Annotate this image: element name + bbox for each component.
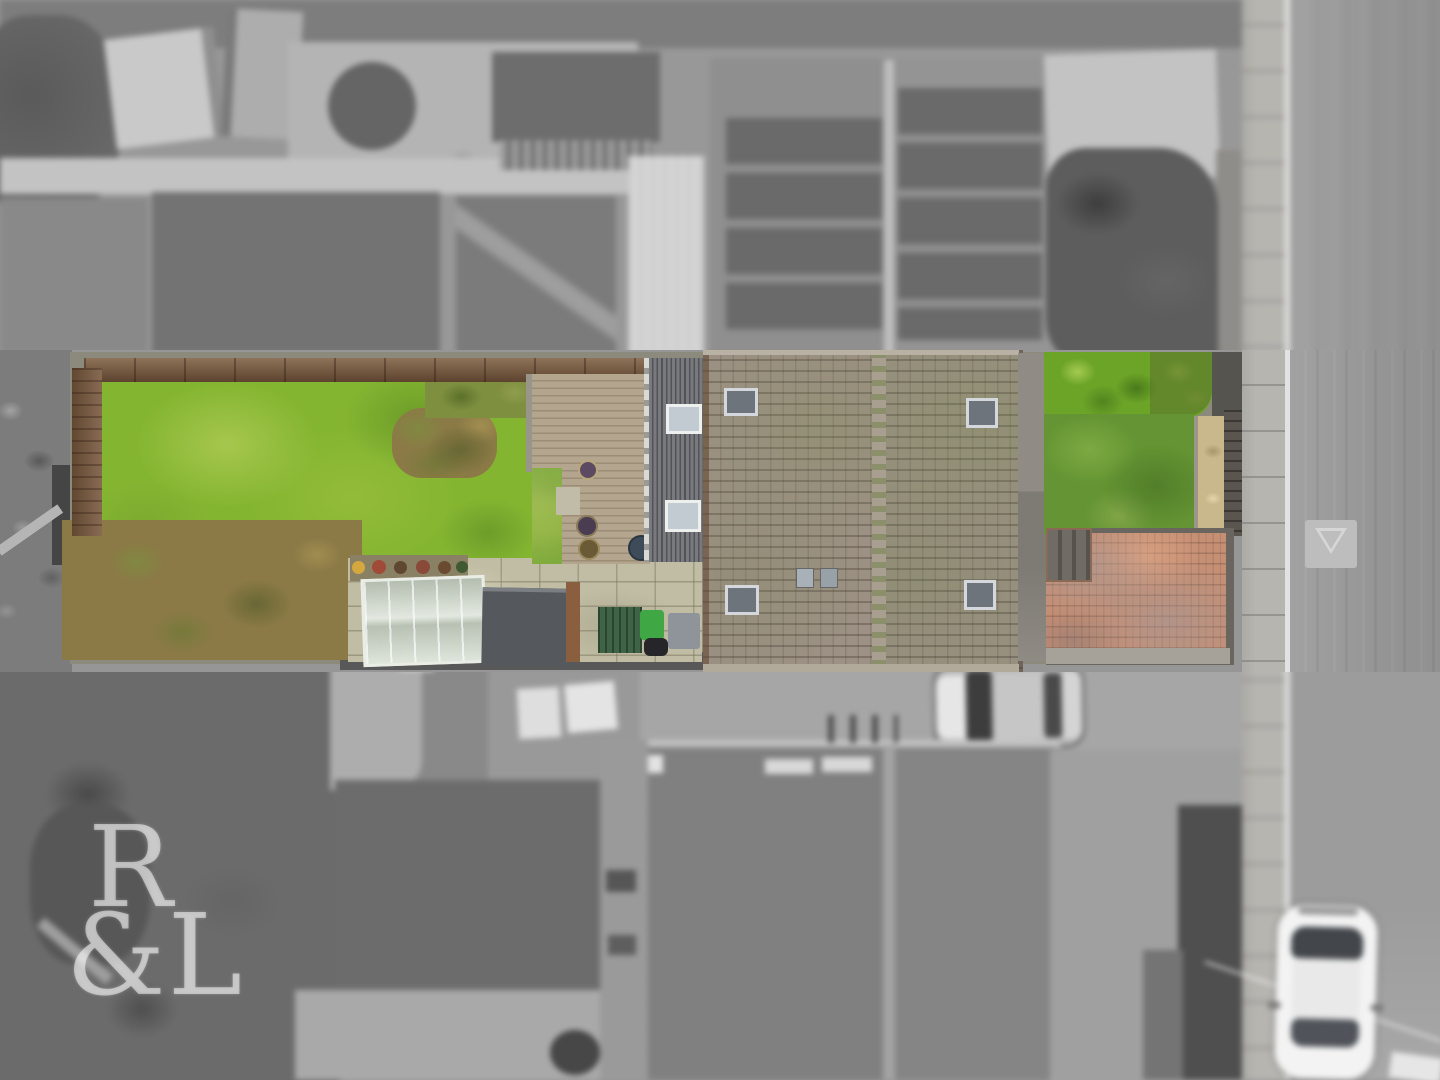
grey-storage-box [668,613,700,649]
main-roof-ridge [872,352,886,672]
grey-car-roof [993,671,1046,740]
aerial-photo: R &L [0,0,1440,1080]
roof-vent-2 [820,568,838,588]
bottom-house-right-slope [895,747,1057,1080]
roof-skylight-c [725,585,759,615]
deck-pot-3 [578,538,600,560]
white-car-windscreen [1291,926,1364,960]
roof-eaves-bottom [703,664,1019,672]
greenhouse [361,575,488,667]
patio-notch [330,655,422,790]
pot-red-1 [372,560,386,574]
deck-pot-1 [578,460,598,480]
shed-roof [104,27,227,150]
pot-brown-1 [394,561,407,574]
top-house-ridge [884,60,894,356]
white-car-grille [1298,906,1358,916]
dark-blob [550,1030,600,1075]
lawn-notch [532,468,562,564]
pale-long-building [628,156,704,366]
watermark-line-2: &L [66,900,244,1012]
conservatory-window-2 [564,681,618,733]
white-car-rear-window [1291,1018,1360,1048]
back-fence-left [72,368,102,536]
side-wall-strip [600,740,648,1080]
give-way-patch [1305,520,1357,568]
roof-skylight-b [966,398,998,428]
shrub-patch-right [392,408,497,478]
pavement-top [1242,0,1288,366]
dark-garden-mid [335,780,645,1015]
hedge-shadow-strip [1212,352,1246,418]
pavement-mid [1242,350,1288,672]
give-way-triangle-inner [1320,531,1342,549]
aerial-antenna [828,715,898,743]
garden-plot-c [456,196,616,354]
step-stone [556,487,580,515]
roof-skylight-d [964,580,996,610]
bin-store [598,607,642,653]
pot-green [456,561,468,573]
ridge-vent-2 [822,757,872,772]
grey-car-rear-window [1043,673,1062,737]
roof-vent-1 [796,568,814,588]
surroundings-top [0,0,1440,366]
conservatory-window-1 [517,687,562,739]
white-car-mirror-right [1371,1004,1384,1011]
roof-skylight-a [724,388,758,416]
dark-shed [481,587,572,667]
dark-shed-roof [492,52,660,142]
bottom-house-left-slope [645,747,885,1080]
gravel-bed [1194,416,1228,534]
pot-brown-2 [438,561,451,574]
grey-car [935,665,1082,748]
white-car [1274,904,1379,1080]
garage-shadow [1143,950,1183,1080]
dark-hedge-mass [1046,148,1218,366]
road-mid [1290,350,1440,672]
drive-apron [1046,648,1230,664]
extension-skylight-2 [665,500,701,532]
solar-panels-right [898,88,1042,340]
black-bags [644,638,668,656]
ridge-vent-1 [765,759,813,774]
deck-pot-2 [576,515,598,537]
front-lawn [1044,414,1194,534]
side-passage [1018,353,1046,661]
roof-eaves-top [703,350,1019,355]
solar-panels-left [726,118,882,336]
dry-shrub-border [62,520,362,660]
property-strip [0,350,1440,672]
pot-red-2 [416,560,430,574]
garden-plot-a [0,198,148,353]
garden-plot-b [152,192,440,354]
road-top [1290,0,1440,366]
dark-garage-strip [1178,805,1244,1080]
white-car-roof [1291,958,1361,1020]
grey-car-boot [1061,671,1082,739]
main-roof-right-slope [886,350,1023,672]
bottom-house-ridge [883,745,895,1080]
green-bin-lid [640,610,664,640]
white-car-mirror-left [1268,1001,1281,1008]
dark-window-2 [608,935,636,955]
shed-wood-edge [566,582,580,662]
extension-skylight-1 [666,404,702,434]
round-bush [328,62,416,150]
pot-yellow [352,561,365,574]
grey-car-windscreen [965,670,992,742]
dark-window-1 [606,870,636,892]
driveway-steps [1046,528,1092,582]
front-hedge-dark-end [1150,352,1212,416]
